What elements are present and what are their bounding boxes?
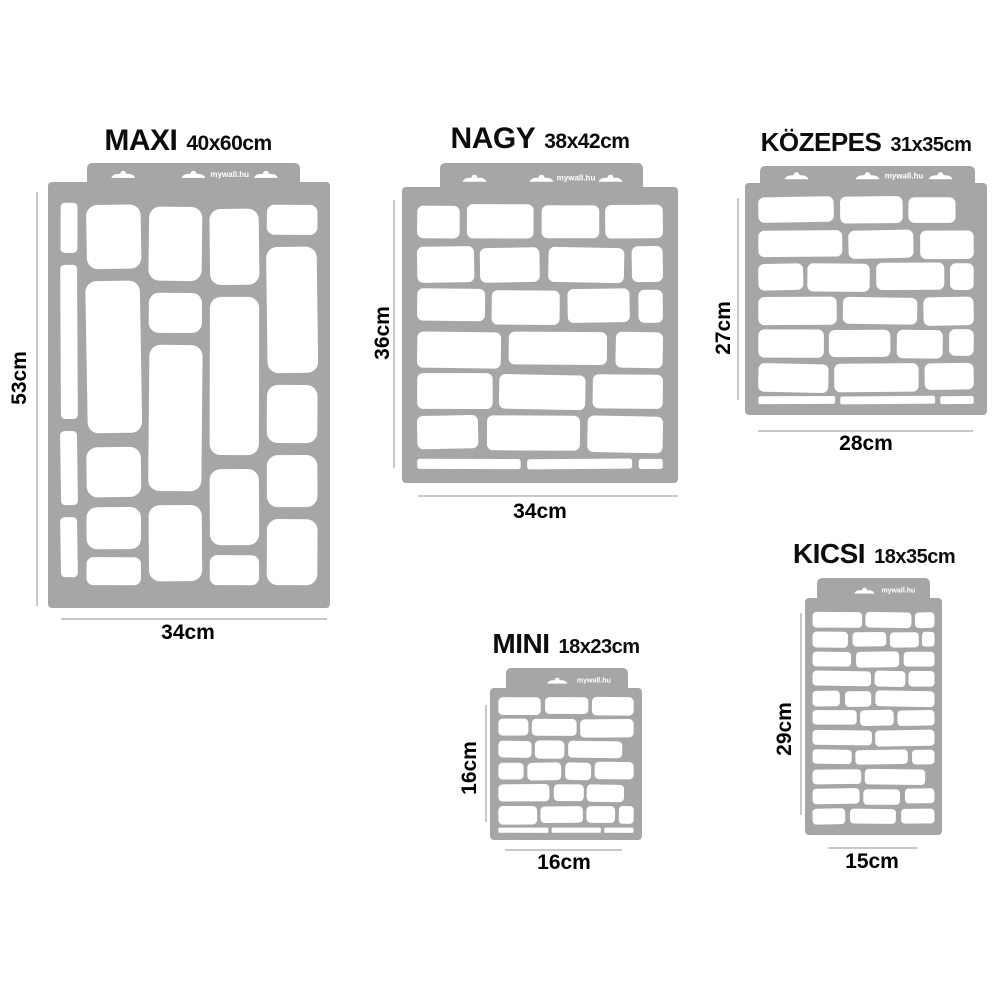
product-size: 18x35cm (874, 546, 955, 569)
product-name: KICSI (793, 538, 865, 570)
brand-watermark: mywall.hu (881, 588, 915, 595)
brick-cutout (865, 612, 911, 628)
brick-cutout (860, 710, 894, 726)
product-kicsi: KICSI 18x35cm mywall.hu 29cm 15cm (0, 0, 1000, 1000)
brick-cutout (812, 730, 872, 745)
brick-cutout (812, 652, 851, 667)
brick-cutout (890, 632, 919, 647)
height-dimension-label: 29cm (773, 702, 797, 756)
brick-cutout (845, 691, 871, 707)
brick-cutout (812, 769, 861, 784)
brick-cutout (813, 710, 857, 725)
brick-cutout (856, 651, 899, 667)
brick-cutout (812, 612, 862, 628)
stencil-graphic-kicsi: mywall.hu (805, 578, 942, 835)
brick-cutout (812, 691, 839, 707)
brick-cutout (904, 652, 935, 667)
brick-cutout (812, 749, 851, 764)
brick-cutout (850, 809, 896, 824)
height-dimension-line (800, 613, 802, 815)
width-dimension-label: 15cm (845, 850, 899, 874)
brick-cutout (915, 612, 935, 628)
brick-cutout (912, 750, 935, 765)
brick-cutout (812, 788, 859, 804)
brick-cutout (908, 671, 934, 687)
product-title: KICSI 18x35cm (793, 538, 955, 570)
size-comparison-canvas: MAXI 40x60cm mywall.hu 53cm 34cm NAGY 38… (0, 0, 1000, 1000)
brick-cutout (897, 710, 934, 726)
brick-cutout (905, 788, 935, 803)
brick-cutout (875, 730, 935, 747)
brick-cutout (853, 632, 887, 647)
brick-cutout (901, 809, 935, 824)
brick-cutout (874, 671, 905, 687)
brick-cutout (812, 808, 845, 825)
brick-cutout (922, 632, 935, 647)
brick-cutout (812, 631, 848, 647)
brick-cutout (812, 671, 871, 687)
brick-cutout (865, 769, 926, 785)
brick-cutout (855, 749, 908, 764)
brick-cutout (863, 789, 900, 805)
brick-cutout (875, 690, 934, 707)
width-dimension-line (828, 847, 917, 849)
